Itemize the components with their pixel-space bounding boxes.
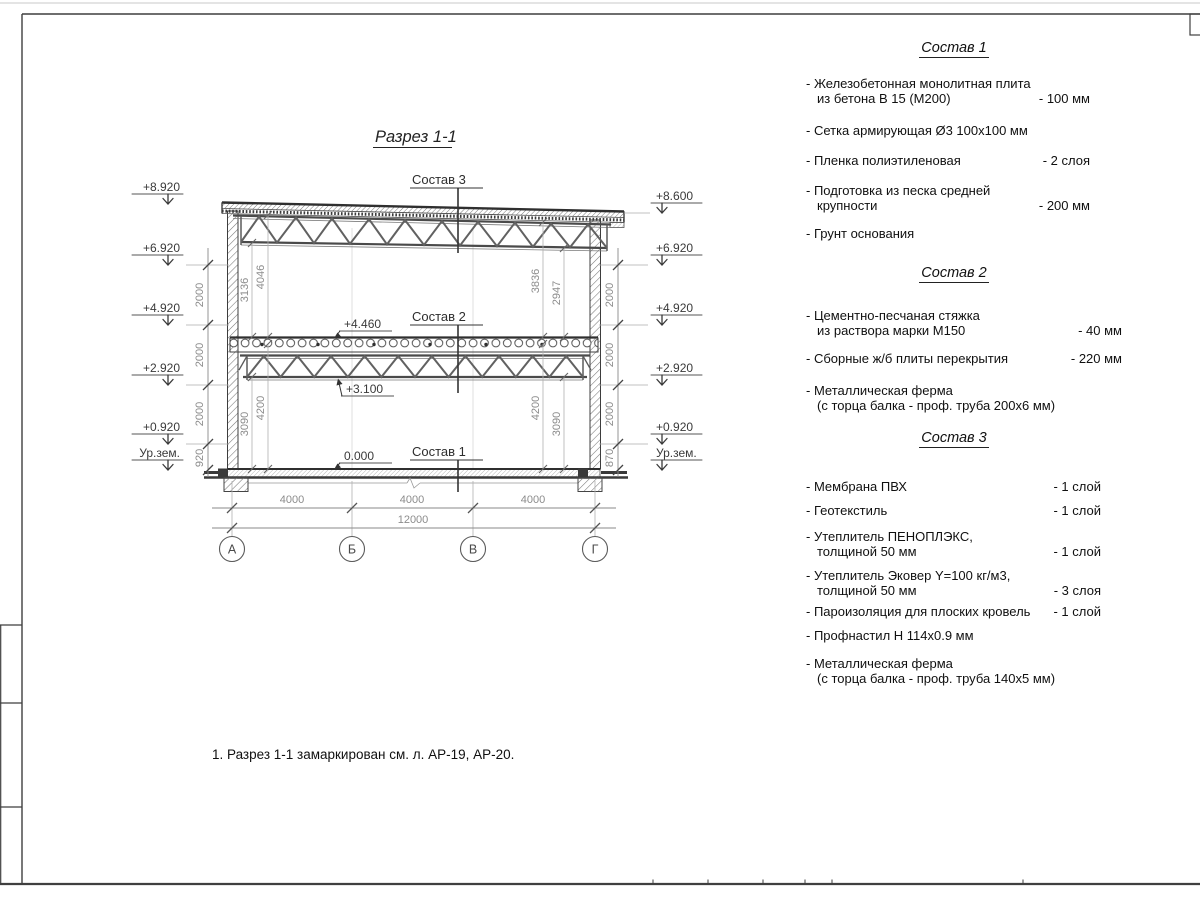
right-dim-chain: 2000 2000 2000 870	[599, 213, 650, 477]
dim-4000-2: 4000	[400, 494, 424, 506]
material-item: - Пленка полиэтиленовая - 2 слоя	[806, 153, 1090, 168]
chain-left-0: 2000	[194, 283, 206, 307]
chain-right-2: 2000	[604, 402, 616, 426]
level-4460-text: +4.460	[344, 317, 381, 331]
drawing-sheet: Разрез 1-1	[0, 0, 1200, 900]
sostav3-label: Состав 3	[412, 172, 466, 187]
material-item: - Железобетонная монолитная плитаиз бето…	[806, 76, 1090, 106]
chain-left-3: 920	[194, 449, 206, 467]
material-item: - Сетка армирующая Ø3 100х100 мм	[806, 123, 1090, 138]
elev-right-5: Ур.зем.	[656, 446, 697, 460]
level-3100-text: +3.100	[346, 382, 383, 396]
material-item: - Грунт основания	[806, 226, 1090, 241]
ground-floor	[204, 469, 628, 492]
sheet-note: 1. Разрез 1-1 замаркирован см. л. АР-19,…	[212, 747, 514, 762]
left-dim-chain: 2000 2000 2000 920	[186, 248, 229, 477]
left-elevation-marks: +8.920 +6.920 +4.920 +2.920 +0.920 Ур.зе…	[132, 180, 183, 470]
plinth-block-left	[218, 469, 228, 478]
sostav1-label: Состав 1	[412, 444, 466, 459]
elev-right-1: +6.920	[656, 241, 693, 255]
sostav2-label: Состав 2	[412, 309, 466, 324]
elev-right-2: +4.920	[656, 301, 693, 315]
elev-left-0: +8.920	[143, 180, 180, 194]
dim-3090-left: 3090	[239, 412, 251, 436]
dim-3136: 3136	[239, 278, 251, 302]
material-item: - Цементно-песчаная стяжкаиз раствора ма…	[806, 308, 1122, 338]
dim-2947: 2947	[551, 281, 563, 305]
material-item: - Подготовка из песка среднейкрупности -…	[806, 183, 1090, 213]
material-item: - Профнастил Н 114х0.9 мм	[806, 628, 1101, 643]
elev-left-4: +0.920	[143, 420, 180, 434]
elev-left-5: Ур.зем.	[139, 446, 180, 460]
elev-left-3: +2.920	[143, 361, 180, 375]
axis-b: Б	[348, 543, 356, 557]
roof-assembly	[222, 203, 624, 252]
dim-12000: 12000	[398, 514, 429, 526]
sostav3-header: Состав 3	[806, 430, 1102, 446]
drawing-title-text: Разрез 1-1	[375, 128, 457, 146]
drawing-title: Разрез 1-1	[373, 128, 457, 148]
level-0000: 0.000	[334, 449, 392, 470]
plinth-block-right	[578, 469, 588, 478]
elev-right-3: +2.920	[656, 361, 693, 375]
elev-right-4: +0.920	[656, 420, 693, 434]
dim-4200-right: 4200	[530, 396, 542, 420]
corner-box	[1190, 14, 1200, 35]
material-item: - Металлическая ферма(с торца балка - пр…	[806, 383, 1122, 413]
chain-right-0: 2000	[604, 283, 616, 307]
level-3100: +3.100	[337, 379, 395, 397]
axis-a: А	[228, 543, 237, 557]
sostav2-header: Состав 2	[806, 265, 1102, 281]
chain-left-1: 2000	[194, 343, 206, 367]
dim-3836: 3836	[530, 269, 542, 293]
elev-right-0: +8.600	[656, 189, 693, 203]
elev-left-2: +4.920	[143, 301, 180, 315]
dim-4000-3: 4000	[521, 494, 545, 506]
underslab-line	[248, 478, 578, 488]
chain-right-1: 2000	[604, 343, 616, 367]
level-4460: +4.460	[334, 317, 392, 339]
bottom-dims: 4000 4000 4000 12000 А Б В Г	[212, 481, 616, 562]
chain-left-2: 2000	[194, 402, 206, 426]
material-item: - Металлическая ферма(с торца балка - пр…	[806, 656, 1101, 686]
axis-v: В	[469, 543, 477, 557]
sostav1-header: Состав 1	[806, 40, 1102, 56]
axis-bubbles: А Б В Г	[220, 537, 608, 562]
material-item: - Геотекстиль - 1 слой	[806, 503, 1101, 518]
material-item: - Мембрана ПВХ - 1 слой	[806, 479, 1101, 494]
chain-right-3: 870	[604, 449, 616, 467]
elev-left-1: +6.920	[143, 241, 180, 255]
material-item: - Утеплитель ПЕНОПЛЭКС,толщиной 50 мм - …	[806, 529, 1101, 559]
dim-4046: 4046	[255, 265, 267, 289]
dim-4000-1: 4000	[280, 494, 304, 506]
material-item: - Утеплитель Эковер Y=100 кг/м3,толщиной…	[806, 568, 1101, 598]
material-item: - Пароизоляция для плоских кровель - 1 с…	[806, 604, 1101, 619]
level-0000-text: 0.000	[344, 449, 374, 463]
right-elevation-marks: +8.600 +6.920 +4.920 +2.920 +0.920 Ур.зе…	[651, 189, 702, 470]
floor-truss	[239, 356, 591, 381]
dim-3090-right: 3090	[551, 412, 563, 436]
axis-g: Г	[592, 543, 599, 557]
material-item: - Сборные ж/б плиты перекрытия - 220 мм	[806, 351, 1122, 366]
left-margin-boxes	[0, 625, 22, 884]
dim-4200-left: 4200	[255, 396, 267, 420]
